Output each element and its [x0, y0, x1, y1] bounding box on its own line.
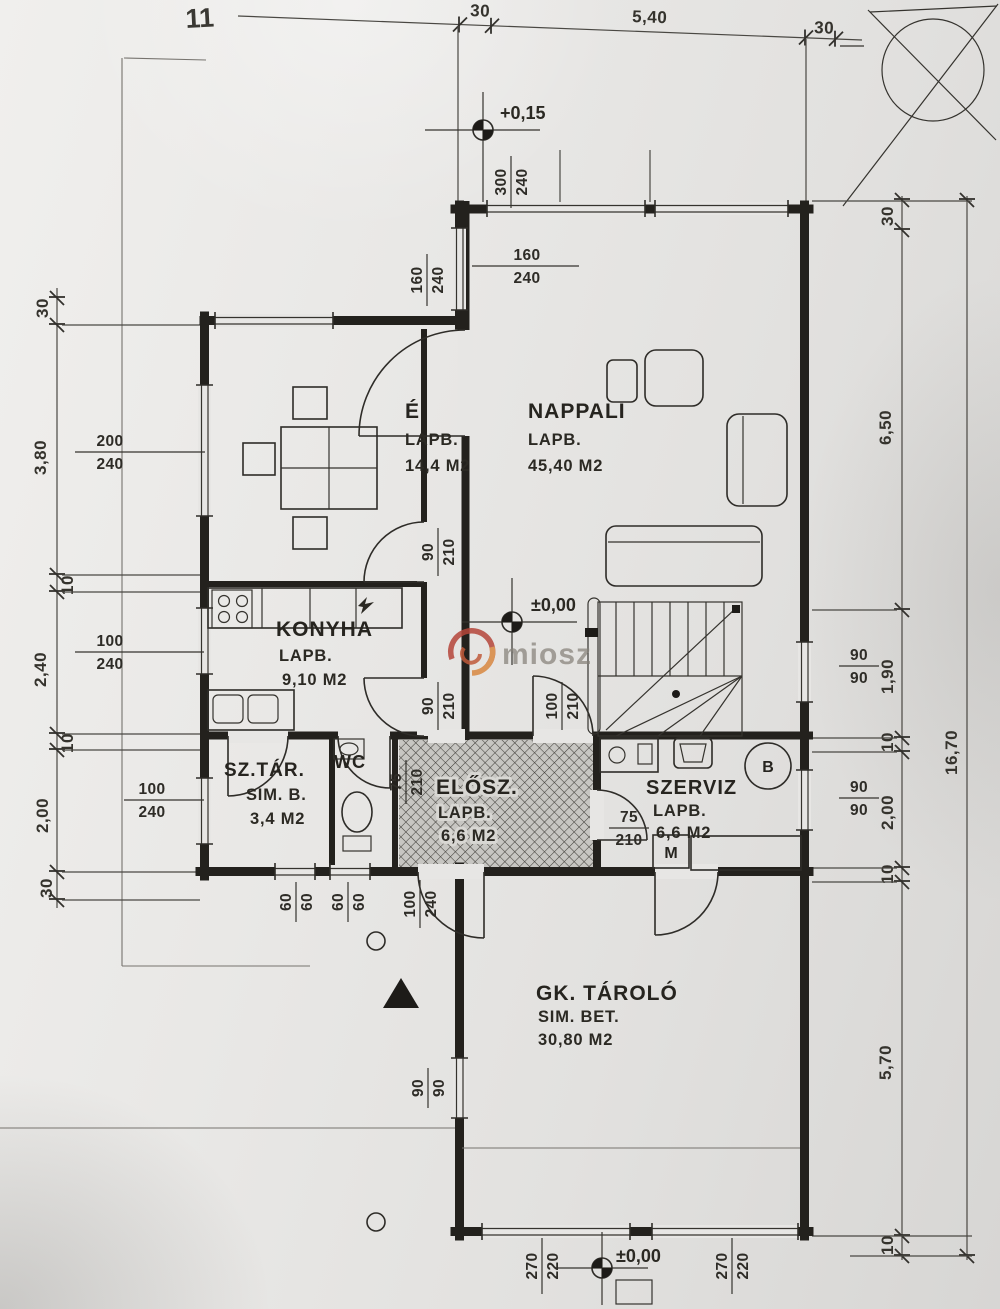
d75sz-w: 75	[620, 809, 638, 826]
room-szerviz: SZERVIZ LAPB. 6,6 M2	[646, 777, 737, 842]
window-90-right-2	[796, 770, 813, 830]
room-label-wc: WC	[334, 752, 366, 772]
room-area-elosz: 6,6 M2	[441, 827, 496, 845]
floor-plan-photo: 11 30 5,40 30 30 3,80 10 2,40 10 2,00 30	[0, 0, 1000, 1309]
dim-top-30b: 30	[814, 18, 835, 38]
label-w300: 300 240	[493, 156, 531, 208]
w90r2-w: 90	[850, 779, 868, 796]
window-top-right	[655, 200, 788, 217]
room-finish-szerviz: LAPB.	[653, 802, 707, 820]
window-100-storage	[196, 778, 213, 844]
window-60-a	[275, 863, 315, 880]
w90g-h: 90	[431, 1079, 448, 1097]
room-sztar: SZ.TÁR. SIM. B. 3,4 M2	[224, 759, 307, 828]
dimension-line-right: 30 6,50 1,90 10 2,00 10 5,70 10 16,70	[812, 193, 975, 1263]
watermark: miosz	[451, 631, 592, 673]
walls	[200, 205, 809, 1236]
door-hall-living	[533, 676, 593, 743]
w60b-w: 60	[330, 893, 347, 911]
d100e-h: 240	[423, 890, 440, 917]
w90r1-w: 90	[850, 647, 868, 664]
room-label-sztar: SZ.TÁR.	[224, 759, 305, 781]
room-label-nappali: NAPPALI	[528, 400, 626, 423]
label-w90r1: 90 90	[839, 647, 879, 687]
w300-h: 240	[514, 168, 531, 195]
boiler-label: B	[762, 759, 774, 776]
watermark-text: miosz	[502, 638, 592, 671]
room-finish-etkezo: LAPB.	[405, 431, 459, 449]
opening-labels: 300 240 160 240 160 240 200 240 100 240 …	[75, 156, 879, 1294]
dim-top-30a: 30	[470, 1, 491, 21]
room-area-konyha: 9,10 M2	[282, 671, 347, 689]
dim-right-650: 6,50	[876, 410, 895, 445]
dim-left-30a: 30	[33, 298, 52, 318]
label-w90g: 90 90	[410, 1068, 448, 1108]
dim-right-200: 2,00	[878, 795, 897, 830]
compass-symbol	[840, 4, 998, 206]
w90r2-h: 90	[850, 802, 868, 819]
label-w60b: 60 60	[330, 882, 368, 922]
window-200-dining	[196, 385, 213, 516]
garage-door-b	[652, 1223, 798, 1240]
d75sz-h: 210	[615, 832, 642, 849]
w200-w: 200	[96, 433, 123, 450]
w160b-h: 240	[513, 270, 540, 287]
label-w160a: 160 240	[409, 254, 447, 306]
room-area-nappali: 45,40 M2	[528, 457, 603, 475]
dimension-line-left: 30 3,80 10 2,40 10 2,00 30	[31, 288, 200, 908]
floor-plan-drawing: 11 30 5,40 30 30 3,80 10 2,40 10 2,00 30	[0, 0, 1000, 1309]
window-60-b	[330, 863, 370, 880]
dim-right-570: 5,70	[876, 1045, 895, 1080]
d100e-w: 100	[402, 890, 419, 917]
dim-right-30: 30	[878, 206, 897, 226]
dim-left-380: 3,80	[31, 440, 50, 475]
w160b-w: 160	[513, 247, 540, 264]
windows	[196, 200, 813, 1240]
label-w200: 200 240	[75, 433, 205, 473]
label-w160b: 160 240	[472, 247, 579, 287]
dim-top-540: 5,40	[632, 7, 668, 27]
w60b-h: 60	[351, 893, 368, 911]
d90b-w: 90	[420, 697, 437, 715]
plot-number: 11	[185, 3, 215, 34]
room-finish-konyha: LAPB.	[279, 647, 333, 665]
label-d100e: 100 240	[402, 880, 440, 928]
window-100-kitchen	[196, 608, 213, 674]
room-label-konyha: KONYHA	[276, 618, 373, 641]
d90a-w: 90	[420, 543, 437, 561]
d90b-h: 210	[441, 692, 458, 719]
w100k-w: 100	[96, 633, 123, 650]
g270b-w: 270	[714, 1252, 731, 1279]
room-label-elosz: ELŐSZ.	[436, 776, 518, 799]
room-finish-nappali: LAPB.	[528, 431, 582, 449]
d90a-h: 210	[441, 538, 458, 565]
g270a-h: 220	[545, 1252, 562, 1279]
w100s-h: 240	[138, 804, 165, 821]
washer-label: M	[664, 845, 677, 862]
level-outside-text: ±0,00	[616, 1246, 661, 1266]
electric-symbol	[358, 597, 374, 614]
entrance-arrow-marker	[383, 978, 419, 1008]
label-d75sz: 75 210	[609, 809, 649, 849]
w300-w: 300	[493, 168, 510, 195]
window-90-garage	[451, 1058, 468, 1118]
room-gktarolo: GK. TÁROLÓ SIM. BET. 30,80 M2	[536, 981, 678, 1049]
door-szerviz-garage	[655, 864, 718, 935]
label-w100k: 100 240	[75, 633, 204, 673]
label-w60a: 60 60	[278, 882, 316, 922]
level-main-text: ±0,00	[531, 595, 576, 615]
dim-right-10c: 10	[878, 1235, 897, 1255]
room-area-szerviz: 6,6 M2	[656, 824, 711, 842]
d75wc-h: 210	[409, 768, 426, 795]
dim-left-200: 2,00	[33, 798, 52, 833]
hall-opening	[428, 729, 465, 743]
room-finish-sztar: SIM. B.	[246, 786, 307, 804]
room-labels: É LAPB. 14,4 M2 NAPPALI LAPB. 45,40 M2 K…	[224, 400, 737, 1049]
dim-left-240: 2,40	[31, 652, 50, 687]
label-w90r2: 90 90	[839, 779, 879, 819]
room-konyha: KONYHA LAPB. 9,10 M2	[276, 618, 373, 689]
level-entry-text: +0,15	[500, 103, 546, 123]
porch-column-1	[367, 932, 385, 950]
window-dining-top	[215, 312, 333, 329]
w90g-w: 90	[410, 1079, 427, 1097]
room-label-gktarolo: GK. TÁROLÓ	[536, 981, 678, 1005]
elosz-hatched-floor	[399, 740, 593, 868]
dining-table-set	[243, 387, 377, 549]
w160a-h: 240	[430, 266, 447, 293]
room-label-szerviz: SZERVIZ	[646, 777, 737, 799]
room-finish-elosz: LAPB.	[438, 804, 492, 822]
d75wc-w: 75	[388, 773, 405, 791]
watermark-logo-icon	[451, 631, 493, 673]
porch-column-2	[367, 1213, 385, 1231]
d100-h: 210	[565, 692, 582, 719]
g270a-w: 270	[524, 1252, 541, 1279]
room-area-sztar: 3,4 M2	[250, 810, 305, 828]
d100-w: 100	[544, 692, 561, 719]
label-g270a: 270 220	[524, 1238, 562, 1294]
living-room-sofas	[606, 350, 787, 586]
dim-right-10a: 10	[878, 732, 897, 752]
room-area-etkezo: 14,4 M2	[405, 457, 470, 475]
w60a-w: 60	[278, 893, 295, 911]
w100s-w: 100	[138, 781, 165, 798]
room-label-etkezo: É	[405, 400, 420, 423]
g270b-h: 220	[735, 1252, 752, 1279]
level-marker-outside: ±0,00	[558, 1232, 661, 1305]
staircase	[585, 598, 742, 736]
dim-left-30b: 30	[37, 878, 56, 898]
window-160-entry-side	[451, 228, 468, 310]
room-nappali: NAPPALI LAPB. 45,40 M2	[528, 400, 626, 475]
room-area-gktarolo: 30,80 M2	[538, 1031, 613, 1049]
w90r1-h: 90	[850, 670, 868, 687]
window-90-right-1	[796, 642, 813, 702]
w160a-w: 160	[409, 266, 426, 293]
garage-door-a	[482, 1223, 630, 1240]
w200-h: 240	[96, 456, 123, 473]
dim-right-10b: 10	[878, 864, 897, 884]
w60a-h: 60	[299, 893, 316, 911]
dim-right-190: 1,90	[878, 659, 897, 694]
label-g270b: 270 220	[714, 1238, 752, 1294]
dim-right-total: 16,70	[942, 730, 961, 775]
w100k-h: 240	[96, 656, 123, 673]
label-d100: 100 210	[544, 682, 582, 730]
room-finish-gktarolo: SIM. BET.	[538, 1008, 619, 1026]
label-w100s: 100 240	[124, 781, 204, 821]
